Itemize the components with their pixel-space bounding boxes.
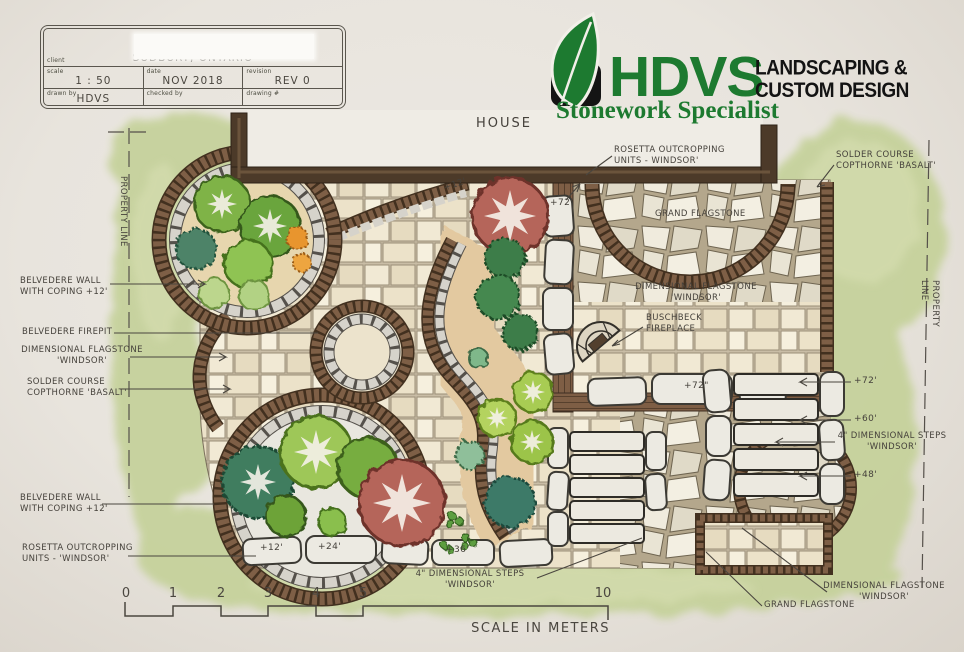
logo-tagline: LANDSCAPING & CUSTOM DESIGN — [755, 57, 909, 102]
scale-tick-10: 10 — [594, 586, 612, 601]
drawn-by-value: HDVS — [44, 93, 143, 105]
plus72-wall: +72" — [684, 381, 709, 393]
plus72-right: +72' — [854, 376, 877, 388]
scale-tick-2: 2 — [212, 586, 230, 601]
rosetta-bottom-label: ROSETTA OUTCROPPING UNITS - 'WINDSOR' — [22, 543, 133, 565]
scale-tick-1: 1 — [164, 586, 182, 601]
dimensional-flagstone-center-label: DIMENSIONAL FLAGSTONE 'WINDSOR' — [632, 282, 760, 304]
scale-tick-5: 5 — [354, 586, 372, 601]
plus36-bottom: +36' — [446, 545, 469, 557]
plus60-right: +60' — [854, 414, 877, 426]
solder-top-right-label: SOLDER COURSE COPTHORNE 'BASALT' — [836, 150, 936, 172]
date-cell: date NOV 2018 — [144, 67, 244, 87]
scale-cell: scale 1 : 50 — [44, 67, 144, 87]
checked-by-cell: checked by — [144, 89, 244, 105]
grand-flagstone-top-label: GRAND FLAGSTONE — [655, 209, 746, 220]
scale-tick-0: 0 — [117, 586, 135, 601]
plus48-right: +48' — [854, 470, 877, 482]
scale-tick-3: 3 — [259, 586, 277, 601]
landscape-plan-sheet: client SUDBURY, ONTARIO scale 1 : 50 dat… — [0, 0, 964, 652]
title-block: client SUDBURY, ONTARIO scale 1 : 50 dat… — [40, 25, 346, 109]
drawing-no-cell: drawing # — [243, 89, 342, 105]
solder-left-label: SOLDER COURSE COPTHORNE 'BASALT' — [27, 377, 127, 399]
belvedere-wall-bottom-label: BELVEDERE WALL WITH COPING +12' — [20, 493, 108, 515]
plus24-bed: +24' — [318, 542, 341, 554]
property-line-left-label: PROPERTY LINE — [117, 176, 128, 247]
scale-value: 1 : 50 — [44, 75, 143, 87]
rosetta-top-label: ROSETTA OUTCROPPING UNITS - WINDSOR' — [614, 145, 725, 167]
plus12-bed: +12' — [260, 543, 283, 555]
dimensional-flagstone-left-label: DIMENSIONAL FLAGSTONE 'WINDSOR' — [18, 345, 146, 367]
checked-by-label: checked by — [147, 90, 183, 97]
drawing-no-label: drawing # — [246, 90, 279, 97]
drawn-by-cell: drawn by HDVS — [44, 89, 144, 105]
plus72-top: +72' — [550, 198, 573, 210]
logo-subtitle: Stonework Specialist — [556, 97, 779, 125]
revision-value: REV 0 — [243, 75, 342, 87]
steps-right-label: 4" DIMENSIONAL STEPS 'WINDSOR' — [828, 431, 956, 453]
title-block-client-row: client SUDBURY, ONTARIO — [44, 29, 342, 67]
buschbeck-label: BUSCHBECK FIREPLACE — [646, 313, 702, 335]
dimensional-flagstone-bottom-label: DIMENSIONAL FLAGSTONE 'WINDSOR' — [816, 581, 952, 603]
logo-leaf-icon — [551, 14, 601, 107]
property-line-right-label: PROPERTY LINE — [918, 280, 940, 327]
redacted-client-name — [134, 34, 314, 59]
date-value: NOV 2018 — [144, 75, 243, 87]
belvedere-firepit-label: BELVEDERE FIREPIT — [22, 327, 112, 338]
steps-bottom-label: 4" DIMENSIONAL STEPS 'WINDSOR' — [400, 569, 540, 591]
revision-cell: revision REV 0 — [243, 67, 342, 87]
scale-tick-4: 4 — [307, 586, 325, 601]
house-label: HOUSE — [468, 116, 540, 133]
belvedere-wall-top-label: BELVEDERE WALL WITH COPING +12' — [20, 276, 108, 298]
scale-caption: SCALE IN METERS — [470, 621, 610, 636]
belvedere-firepit — [316, 306, 408, 398]
